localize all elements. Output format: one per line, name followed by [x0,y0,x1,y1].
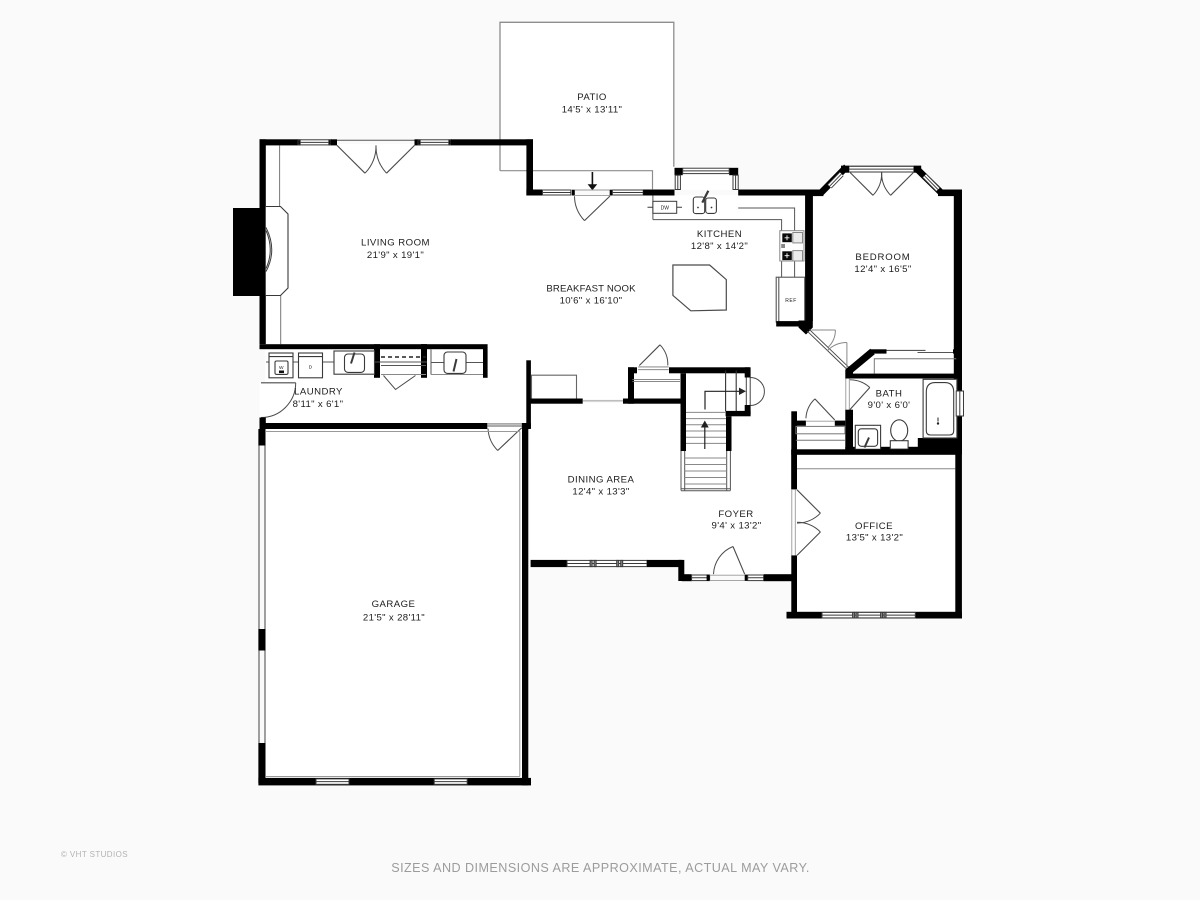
svg-text:BATH: BATH [876,389,903,400]
svg-text:12'4" x 13'3": 12'4" x 13'3" [572,487,629,498]
svg-text:KITCHEN: KITCHEN [697,229,742,240]
svg-text:21'5" x 28'11": 21'5" x 28'11" [363,613,425,624]
svg-text:PATIO: PATIO [577,92,607,103]
svg-text:GARAGE: GARAGE [372,599,416,610]
svg-text:21'9" x 19'1": 21'9" x 19'1" [367,250,424,261]
svg-text:DW: DW [661,206,670,212]
svg-text:13'5" x 13'2": 13'5" x 13'2" [846,533,903,544]
svg-text:SIZES AND DIMENSIONS ARE APPRO: SIZES AND DIMENSIONS ARE APPROXIMATE, AC… [391,861,810,875]
svg-text:12'8" x 14'2": 12'8" x 14'2" [691,241,748,252]
svg-text:12'4" x 16'5": 12'4" x 16'5" [854,264,911,275]
svg-text:BREAKFAST NOOK: BREAKFAST NOOK [546,284,636,295]
svg-text:9'0' x 6'0': 9'0' x 6'0' [868,400,911,411]
svg-text:W: W [279,365,284,371]
svg-text:D: D [309,364,313,370]
svg-text:LAUNDRY: LAUNDRY [294,387,343,398]
svg-text:REF: REF [785,298,797,304]
svg-text:9'4' x 13'2": 9'4' x 13'2" [712,521,762,532]
svg-text:LIVING ROOM: LIVING ROOM [361,238,430,249]
svg-text:14'5' x 13'11": 14'5' x 13'11" [562,105,623,116]
svg-text:DINING AREA: DINING AREA [568,475,635,486]
svg-text:BEDROOM: BEDROOM [855,252,910,263]
svg-text:10'6" x 16'10": 10'6" x 16'10" [560,296,623,307]
svg-text:8'11" x 6'1": 8'11" x 6'1" [293,399,344,410]
svg-text:FOYER: FOYER [718,509,753,520]
svg-text:OFFICE: OFFICE [855,521,893,532]
svg-text:© VHT STUDIOS: © VHT STUDIOS [61,850,128,859]
